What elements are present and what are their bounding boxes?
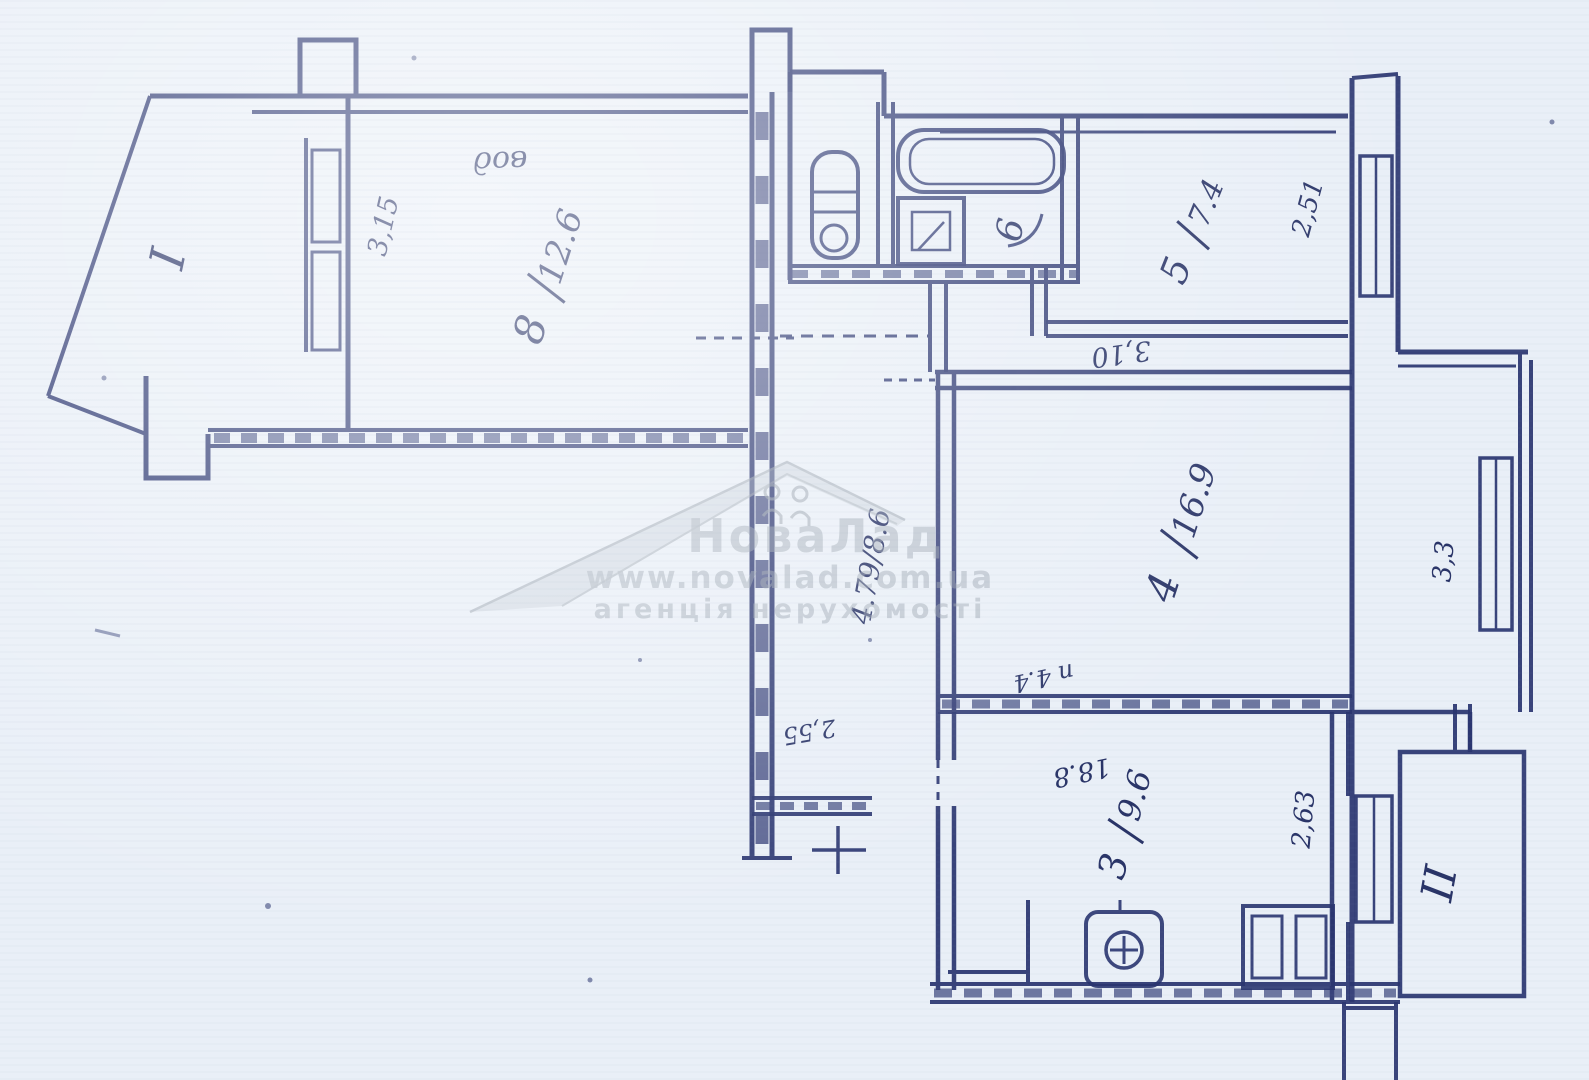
room8-number: 8 (503, 309, 558, 350)
room3-area: 9.6 (1109, 766, 1159, 825)
toilet-icon (812, 152, 858, 258)
bathroom-walls (780, 72, 1348, 372)
scanned-floor-plan: 8 12.6 5 7.4 6 4 16.9 3 9.6 4.79/8.6 I I… (0, 0, 1589, 1080)
bathtub-icon (898, 130, 1064, 192)
dim-3-3: 3,3 (1427, 539, 1460, 583)
balcony2-label: II (1411, 860, 1468, 906)
room4-area: 16.9 (1164, 459, 1225, 543)
room4-number: 4 (1135, 567, 1190, 609)
dim-3-10: 3,10 (1089, 334, 1153, 373)
room8-area: 12.6 (530, 204, 591, 288)
handwritten-note: вод (472, 143, 528, 180)
room3-number: 3 (1089, 849, 1138, 884)
dim-3-15: 3,15 (362, 193, 406, 259)
room6-label: 6 (988, 215, 1032, 245)
dim-2-55: 2,55 (781, 713, 839, 750)
room5-area: 7.4 (1182, 174, 1232, 231)
room5-label: 5 7.4 (1151, 171, 1234, 290)
dim-4-4: п 4.4 (1011, 658, 1077, 698)
floor-plan-svg: 8 12.6 5 7.4 6 4 16.9 3 9.6 4.79/8.6 I I… (0, 0, 1589, 1080)
dim-2-51: 2,51 (1286, 176, 1330, 241)
balcony1-label: I (139, 243, 198, 275)
dim-2-63: 2,63 (1286, 789, 1321, 850)
watermark-tagline: агенція нерухомості (594, 594, 987, 625)
room3-walls (930, 712, 1400, 1002)
watermark-brand: НоваЛад (687, 509, 945, 563)
room8-label: 8 12.6 (503, 202, 593, 350)
cabinet-icon (1243, 906, 1333, 988)
kitchen-walls (1046, 322, 1348, 336)
watermark-url: www.novalad.com.ua (586, 560, 994, 596)
room4-label: 4 16.9 (1135, 456, 1226, 608)
right-outer-walls (1352, 74, 1531, 1002)
room4-walls (884, 372, 1352, 712)
room8-window (312, 150, 340, 350)
room5-number: 5 (1151, 251, 1201, 290)
stove-icon (1086, 900, 1162, 986)
svg-text:6: 6 (988, 215, 1032, 245)
dim-18-8: 18.8 (1050, 751, 1113, 792)
watermark: НоваЛад www.novalad.com.ua агенція нерух… (470, 462, 994, 625)
